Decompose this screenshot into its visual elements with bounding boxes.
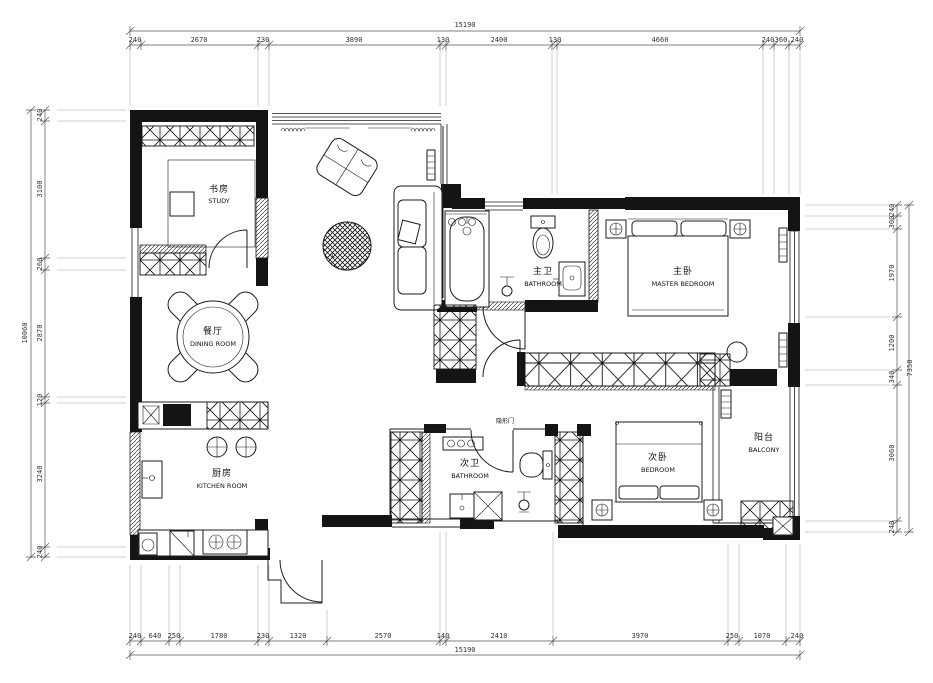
- kitchen-upper-cabinet: [138, 402, 268, 429]
- radiator-icon: [721, 390, 731, 418]
- study-door: [209, 230, 247, 268]
- master-bedroom-label-en: MASTER BEDROOM: [652, 280, 715, 288]
- nightstand: [606, 220, 750, 238]
- dim-value: 240: [888, 204, 896, 217]
- dim-value: 2570: [375, 632, 392, 640]
- kitchen-counter: [138, 530, 268, 556]
- dim-value: 240: [888, 521, 896, 534]
- master-bathroom-label-cn: 主卫: [533, 265, 553, 277]
- curtain-icon: [281, 128, 435, 131]
- dim-value: 1070: [754, 632, 771, 640]
- dim-value: 240: [129, 632, 142, 640]
- dim-value: 260: [36, 258, 44, 271]
- top-dimension-chain: 15190 240 2670 230 3890 130 2400 130 466…: [126, 21, 804, 50]
- study-label-en: STUDY: [208, 197, 230, 205]
- dim-value: 3060: [888, 445, 896, 462]
- dim-value: 4660: [652, 36, 669, 44]
- dim-value: 360: [775, 36, 788, 44]
- washing-machine: [139, 533, 157, 555]
- dim-value: 130: [549, 36, 562, 44]
- wash-basin: [553, 262, 585, 296]
- shower: [474, 492, 502, 520]
- dining-table: [177, 301, 249, 373]
- desk: [170, 192, 194, 216]
- dim-value: 130: [437, 36, 450, 44]
- left-dimension-chain: 10060 240 3100 260 2870 120 3240 240: [21, 106, 50, 561]
- second-bathroom-label-cn: 次卫: [460, 457, 480, 469]
- dim-value: 300: [888, 216, 896, 229]
- stove: [203, 530, 247, 554]
- nightstand: [592, 500, 722, 520]
- dim-value: 240: [791, 36, 804, 44]
- dim-value: 230: [257, 36, 270, 44]
- floor-plan-page: 15190 240 2670 230 3890 130 2400 130 466…: [0, 0, 933, 683]
- radiator-icon: [427, 150, 435, 180]
- dining-label-en: DINING ROOM: [190, 340, 236, 348]
- stool: [207, 437, 256, 457]
- study-label-cn: 书房: [209, 183, 229, 195]
- bath-shelf: [443, 437, 483, 450]
- dim-value: 2400: [491, 36, 508, 44]
- dim-value: 240: [129, 36, 142, 44]
- dim-value: 3240: [36, 466, 44, 483]
- bathroom-door: [483, 307, 525, 349]
- dim-total-bottom: 15190: [454, 646, 475, 654]
- dim-value: 120: [36, 394, 44, 407]
- second-bedroom-label-en: BEDROOM: [641, 466, 675, 474]
- dim-value: 340: [888, 371, 896, 384]
- floor-drain: [517, 492, 531, 512]
- dim-value: 1970: [888, 265, 896, 282]
- wardrobe: [391, 432, 422, 523]
- living-label: L: [331, 252, 335, 260]
- dining-label-cn: 餐厅: [203, 325, 223, 337]
- dim-value: 3890: [346, 36, 363, 44]
- kitchen-label-en: KITCHEN ROOM: [197, 482, 248, 490]
- dim-value: 2870: [36, 325, 44, 342]
- wash-basin: [450, 494, 474, 518]
- dim-value: 240: [762, 36, 775, 44]
- study-room: 书房 STUDY: [140, 126, 255, 275]
- master-bedroom-label-cn: 主卧: [673, 265, 693, 277]
- dim-value: 240: [36, 109, 44, 122]
- wardrobe: [555, 432, 583, 523]
- second-bedroom: 次卧 BEDROOM: [592, 422, 722, 521]
- entry-door: [280, 560, 322, 602]
- dim-value: 250: [726, 632, 739, 640]
- dim-value: 1200: [888, 335, 896, 352]
- dim-value: 1780: [211, 632, 228, 640]
- kitchen-label-cn: 厨房: [212, 467, 232, 479]
- dining-area: 餐厅 DINING ROOM: [163, 287, 262, 386]
- floor-drain: [500, 277, 514, 296]
- dim-value: 3100: [36, 181, 44, 198]
- sideboard-cabinet: [140, 245, 206, 275]
- living-area: L: [281, 128, 442, 310]
- rug: [323, 222, 371, 270]
- second-bedroom-label-cn: 次卧: [648, 451, 668, 463]
- sofa: [394, 186, 442, 310]
- dim-value: 1320: [290, 632, 307, 640]
- dim-value: 230: [257, 632, 270, 640]
- balcony: 阳台 BALCONY: [721, 390, 793, 535]
- balcony-label-en: BALCONY: [748, 446, 779, 454]
- lounge-chair: [314, 135, 380, 198]
- radiator-icon: [779, 228, 787, 367]
- bottom-dimension-chain: 240 640 250 1780 230 1320 2570 140 2410 …: [126, 632, 804, 660]
- right-dimension-chain: 240 300 1970 1200 340 3060 240 7350: [888, 201, 914, 536]
- master-bathroom-label-en: BATHROOM: [524, 280, 562, 288]
- master-bedroom-door: [483, 340, 520, 377]
- second-bathroom-label-en: BATHROOM: [451, 472, 489, 480]
- hallway-wardrobe: [434, 305, 730, 390]
- hidden-door-label: 隐形门: [496, 417, 514, 425]
- dim-value: 3970: [632, 632, 649, 640]
- balcony-label-cn: 阳台: [754, 431, 774, 443]
- dim-value: 240: [791, 632, 804, 640]
- dim-total-top: 15190: [454, 21, 475, 29]
- sink-cabinet: [142, 461, 162, 498]
- floor-plan: 15190 240 2670 230 3890 130 2400 130 466…: [0, 0, 933, 683]
- kitchen-room: 厨房 KITCHEN ROOM: [138, 402, 268, 556]
- study-cabinet: [142, 126, 254, 146]
- dim-value: 2670: [191, 36, 208, 44]
- dim-total-right: 7350: [906, 360, 914, 377]
- dim-value: 140: [437, 632, 450, 640]
- dim-value: 250: [168, 632, 181, 640]
- dim-total-left: 10060: [21, 322, 29, 343]
- dim-value: 640: [149, 632, 162, 640]
- toilet: [520, 451, 552, 479]
- dim-value: 2410: [491, 632, 508, 640]
- toilet: [531, 216, 555, 258]
- dim-value: 240: [36, 546, 44, 559]
